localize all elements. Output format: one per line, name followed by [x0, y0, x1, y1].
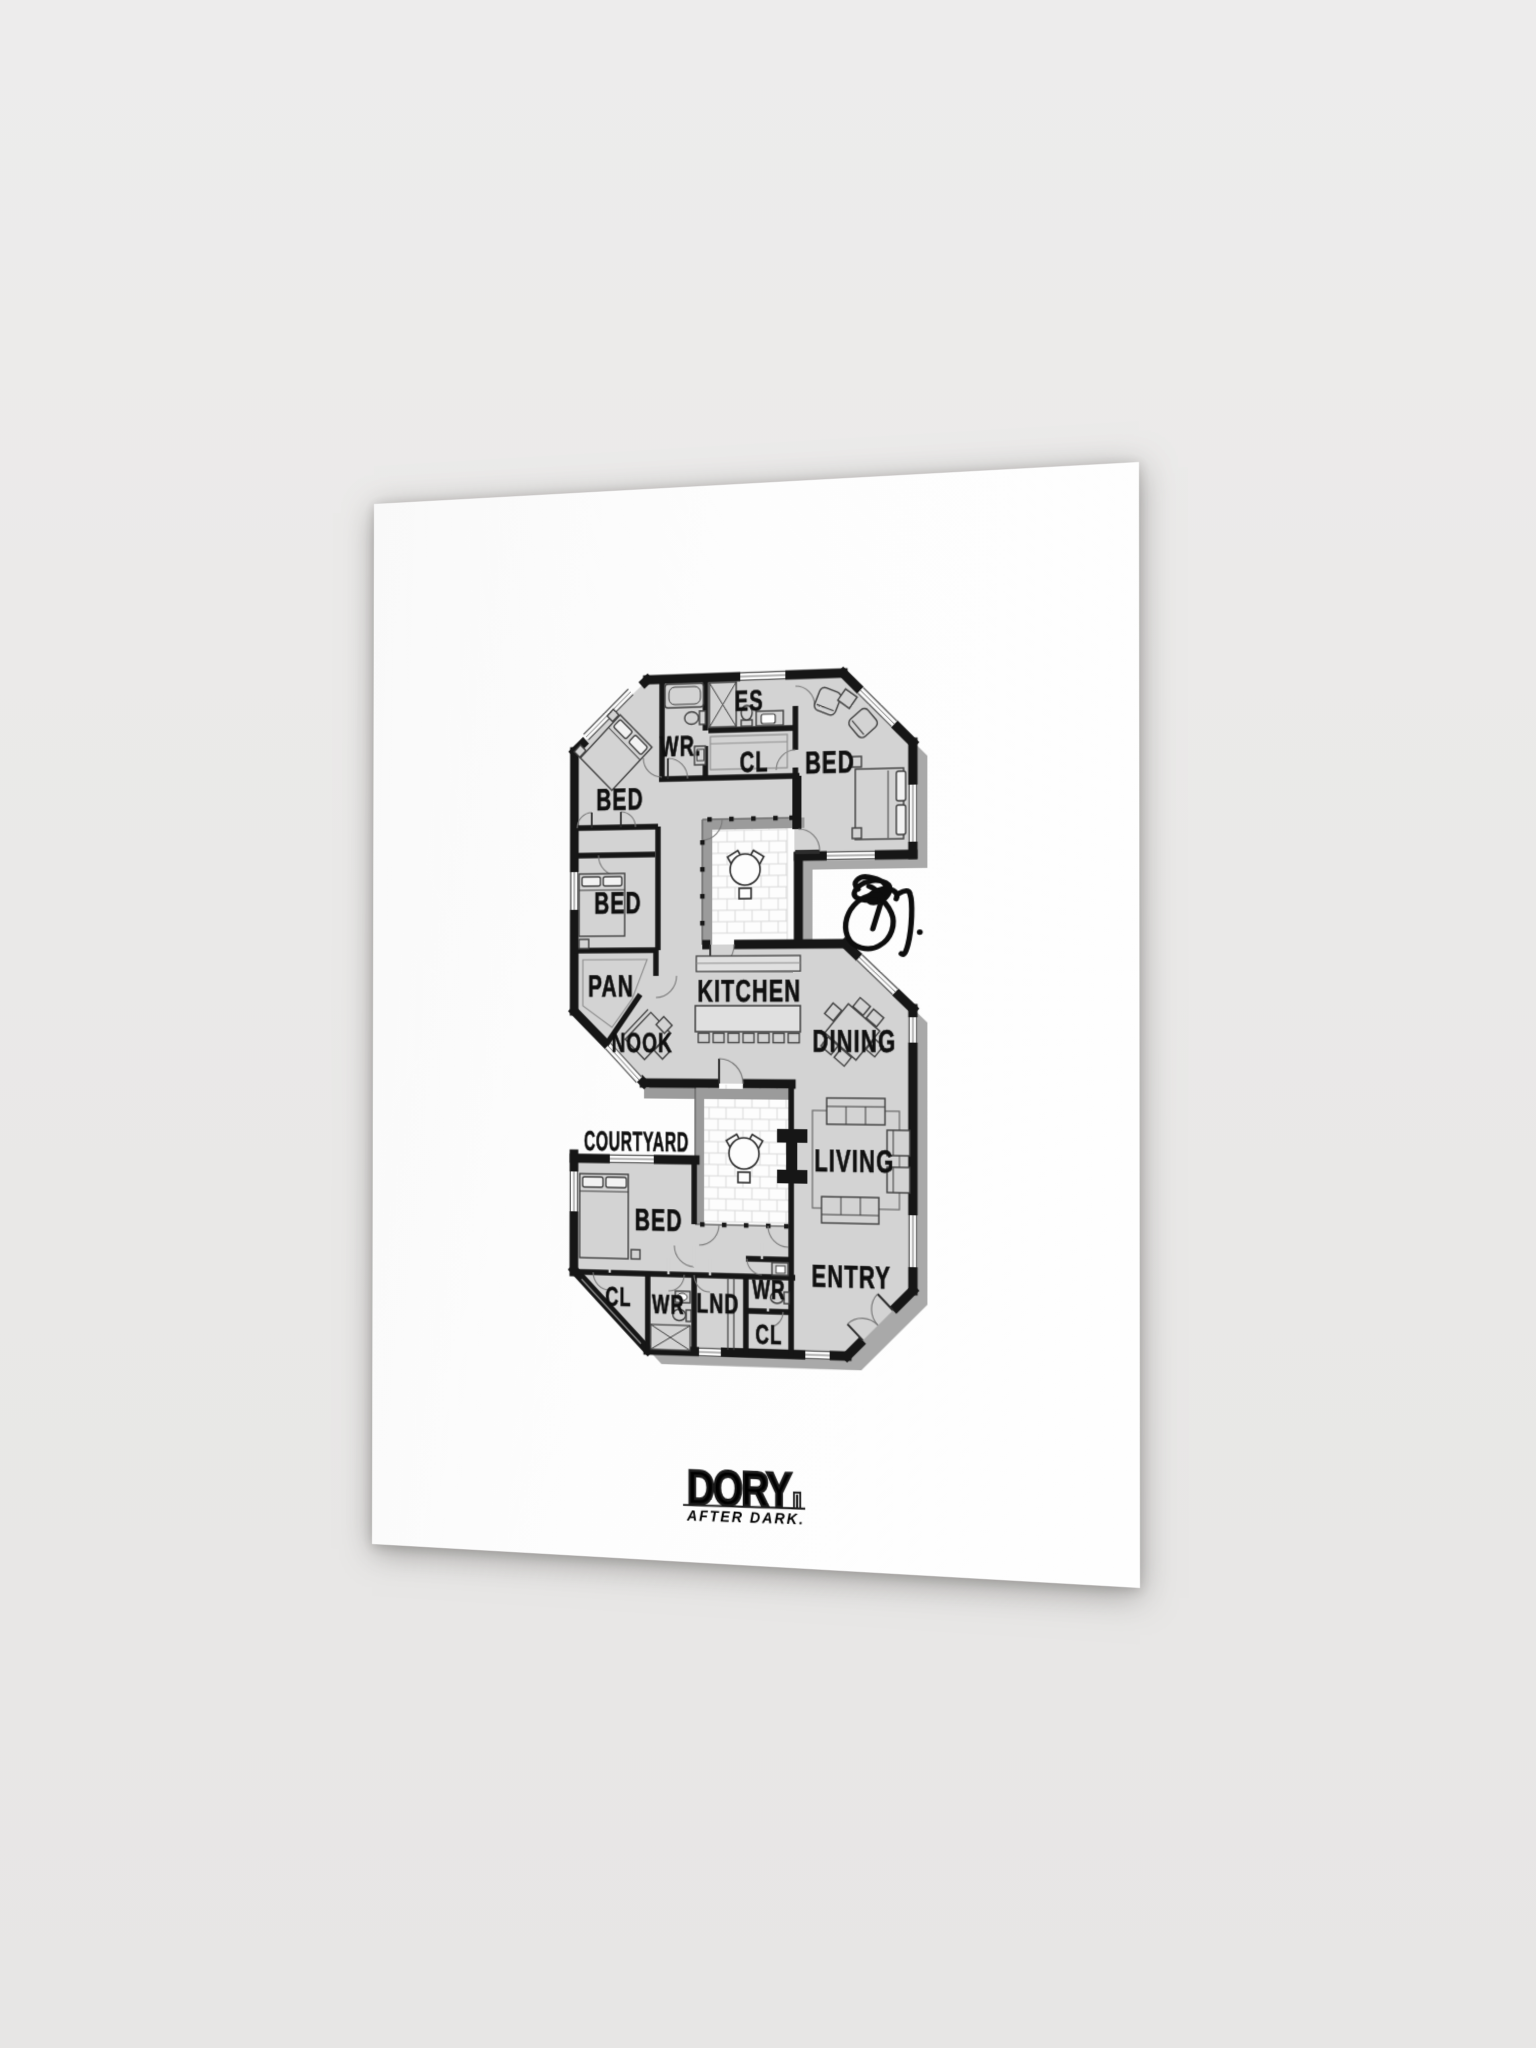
svg-text:DINING: DINING — [812, 1024, 896, 1059]
svg-text:CL: CL — [605, 1281, 631, 1313]
svg-text:BED: BED — [596, 782, 644, 817]
svg-text:WR.: WR. — [660, 730, 702, 763]
svg-text:PAN: PAN — [588, 970, 634, 1004]
svg-text:ENTRY: ENTRY — [811, 1259, 891, 1296]
svg-text:CL: CL — [755, 1319, 782, 1351]
svg-text:COURTYARD: COURTYARD — [584, 1124, 689, 1158]
svg-text:WR: WR — [752, 1274, 786, 1306]
svg-text:CL: CL — [740, 745, 769, 778]
svg-text:BED: BED — [594, 886, 642, 921]
svg-text:KITCHEN: KITCHEN — [698, 974, 802, 1009]
svg-text:WR: WR — [652, 1288, 685, 1320]
svg-text:ES: ES — [735, 684, 764, 717]
svg-text:BED: BED — [635, 1203, 683, 1239]
svg-text:LIVING: LIVING — [814, 1144, 894, 1180]
svg-text:NOOK: NOOK — [612, 1027, 673, 1058]
svg-text:AFTER DARK.: AFTER DARK. — [686, 1507, 805, 1528]
svg-text:BED: BED — [805, 745, 855, 781]
svg-text:LND: LND — [696, 1288, 739, 1320]
